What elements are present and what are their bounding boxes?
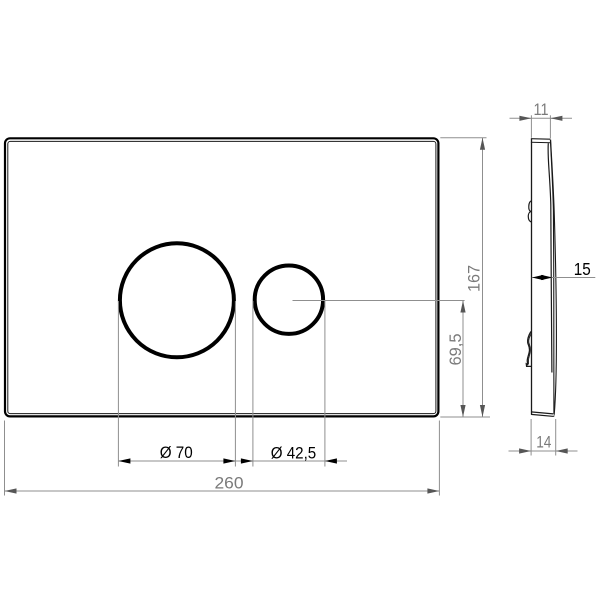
- svg-text:14: 14: [536, 433, 551, 452]
- svg-text:167: 167: [465, 265, 484, 292]
- svg-text:11: 11: [534, 100, 549, 119]
- svg-text:260: 260: [215, 474, 244, 493]
- svg-text:69,5: 69,5: [446, 334, 465, 366]
- svg-text:Ø 70: Ø 70: [160, 443, 193, 462]
- svg-text:Ø 42,5: Ø 42,5: [271, 443, 317, 462]
- svg-text:15: 15: [574, 259, 591, 279]
